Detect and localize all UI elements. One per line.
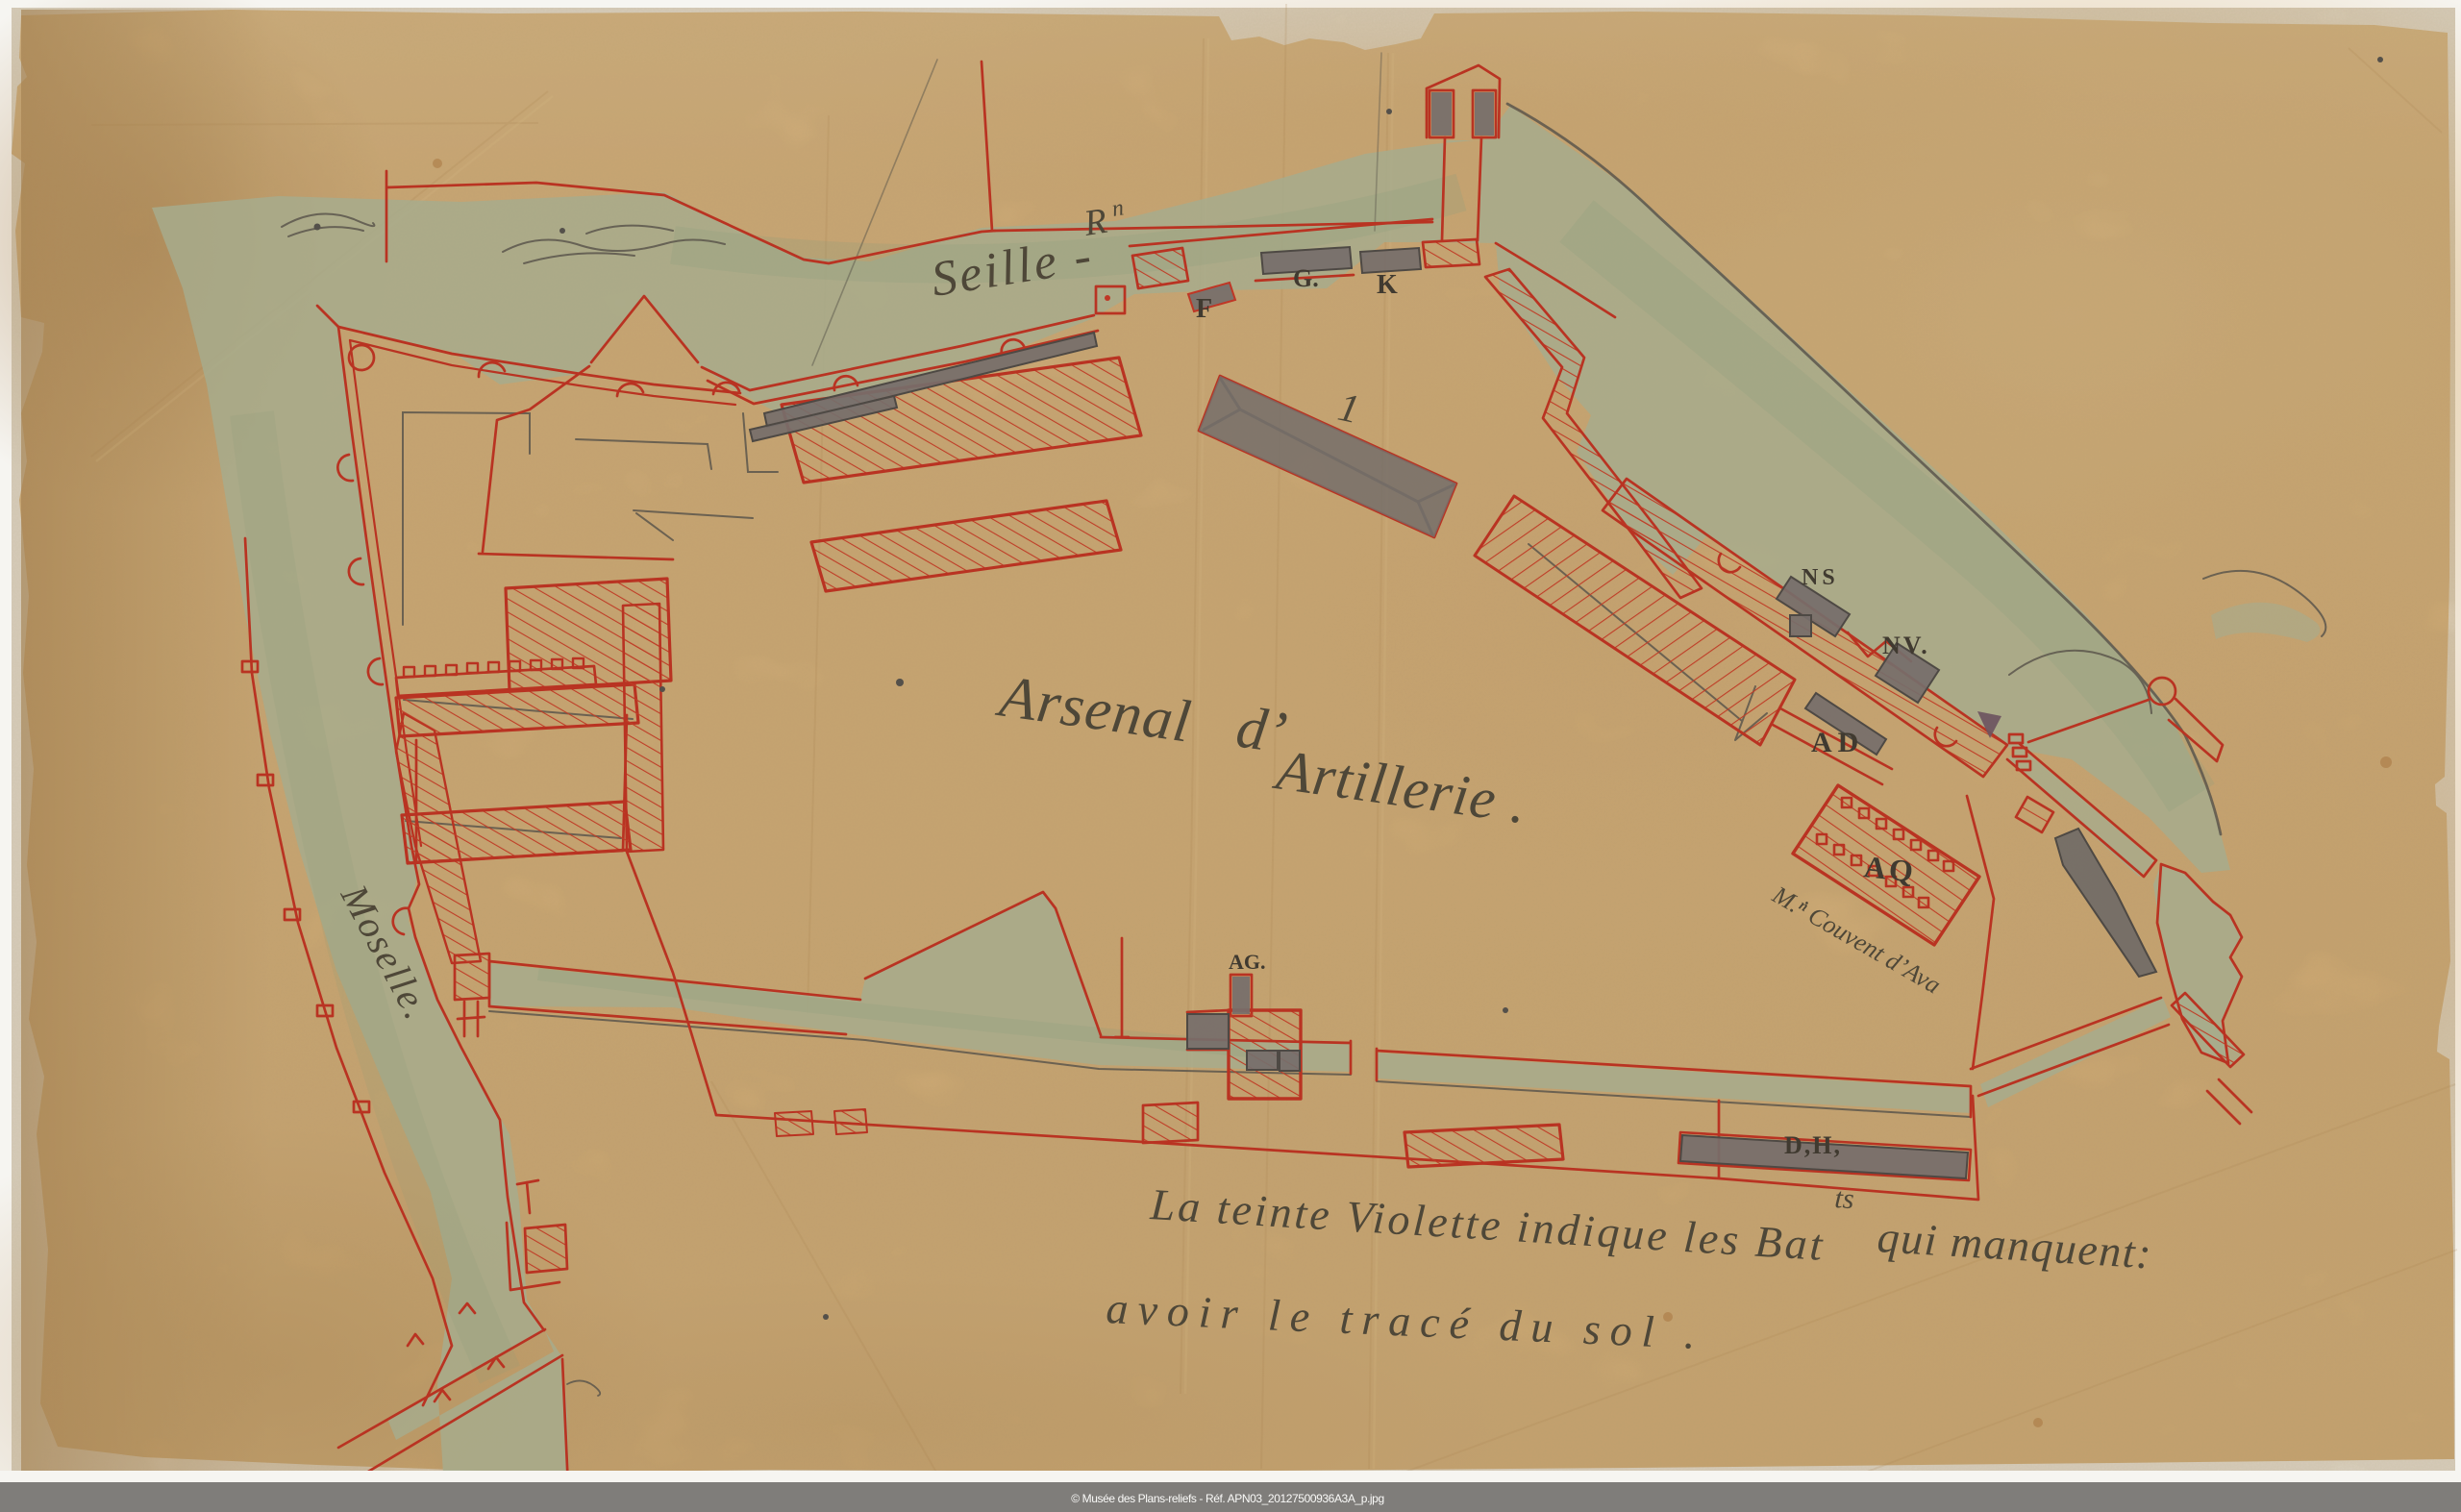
svg-text:© Musée des Plans-reliefs - Ré: © Musée des Plans-reliefs - Réf. APN03_2… — [1071, 1492, 1383, 1505]
svg-text:F: F — [1196, 294, 1212, 324]
svg-text:NV.: NV. — [1882, 632, 1930, 659]
svg-text:ts: ts — [1834, 1182, 1855, 1215]
svg-text:NS: NS — [1802, 565, 1839, 590]
svg-text:AD: AD — [1811, 727, 1864, 758]
svg-text:AQ: AQ — [1862, 849, 1917, 888]
svg-text:K: K — [1377, 270, 1398, 300]
svg-text:D,H,: D,H, — [1784, 1131, 1842, 1159]
svg-text:G.: G. — [1293, 264, 1319, 292]
svg-text:AG.: AG. — [1229, 950, 1266, 974]
